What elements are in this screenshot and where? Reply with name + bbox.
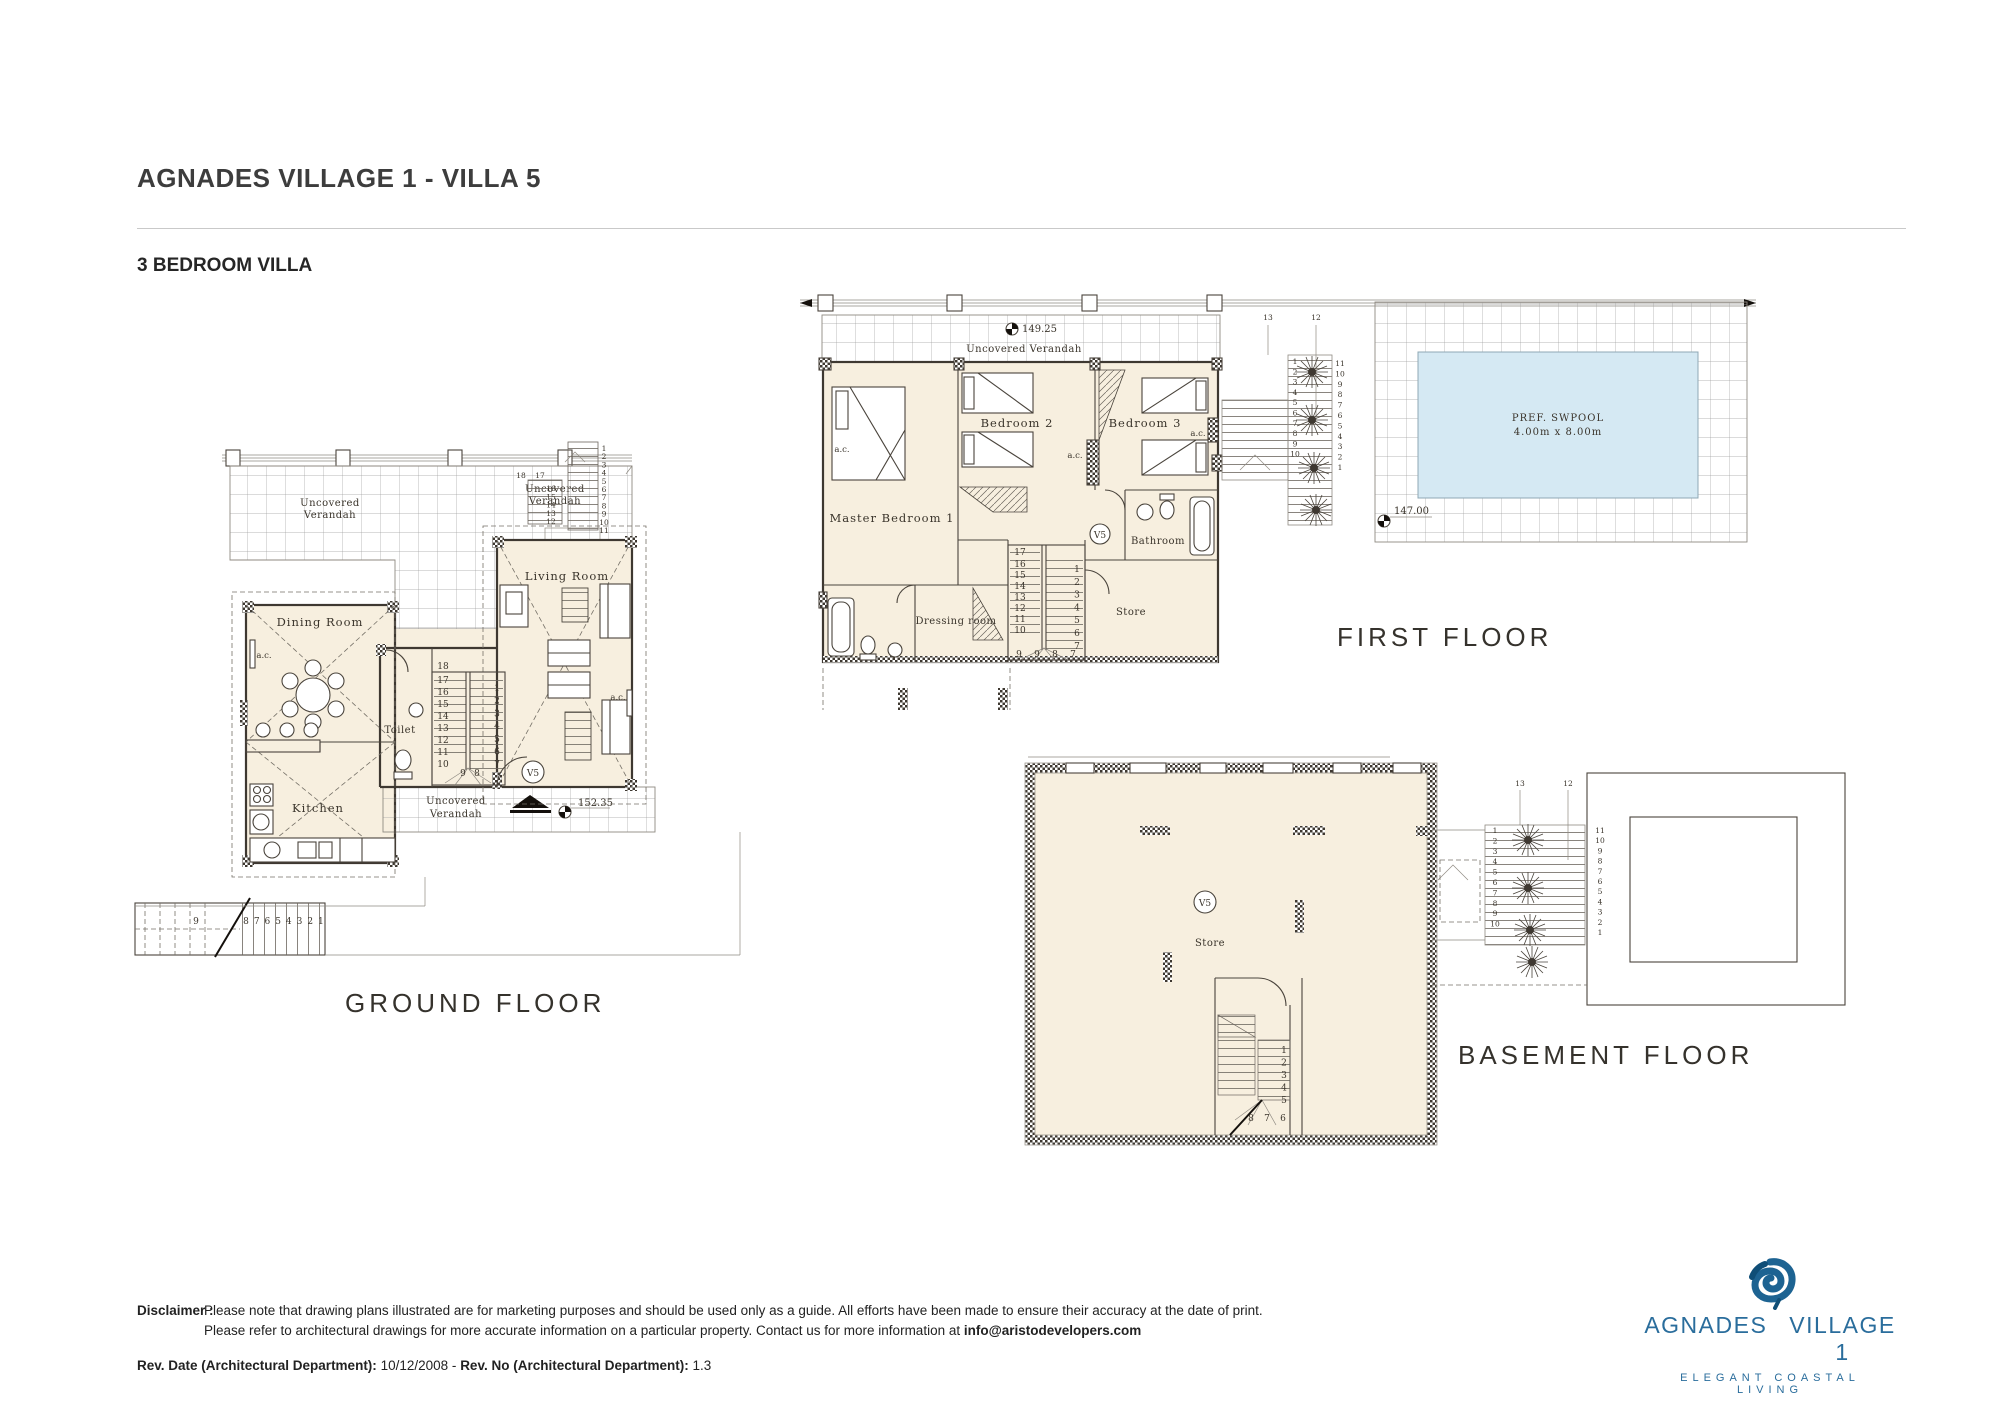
- stair-number: 15: [437, 700, 449, 710]
- stair-number: 13: [1014, 593, 1026, 603]
- stair-number: 5: [1281, 1096, 1287, 1106]
- stair-number: 6: [1293, 409, 1298, 418]
- stair-number: 6: [494, 748, 500, 758]
- stair-number: 1: [318, 917, 324, 927]
- header-divider: [137, 228, 1906, 229]
- floorplan-page: AGNADES VILLAGE 1 - VILLA 5 3 BEDROOM VI…: [0, 0, 2000, 1414]
- stair-numbers: 1234567: [1074, 565, 1080, 652]
- stair-number: 4: [1293, 388, 1298, 397]
- stair-number: 4: [1598, 897, 1603, 906]
- bedroom2-label: Bedroom 2: [981, 416, 1054, 430]
- stair-number: 3: [494, 709, 500, 719]
- lower-floor-outline: [823, 668, 1010, 710]
- svg-text:Verandah: Verandah: [303, 510, 356, 521]
- ac-label: a.c.: [256, 651, 271, 661]
- svg-text:V5: V5: [526, 769, 539, 779]
- stair-number: 11: [1595, 826, 1605, 835]
- verandah-bottom: [383, 787, 655, 832]
- first-floor-caption: FIRST FLOOR: [1337, 622, 1552, 653]
- disclaimer-label: Disclaimer :: [137, 1303, 214, 1318]
- ground-floor-caption: GROUND FLOOR: [345, 988, 605, 1019]
- stair-number: 9: [1016, 650, 1022, 660]
- stair-number: 7: [1070, 650, 1076, 660]
- stair-number: 2: [1074, 578, 1080, 588]
- pool-size-label: 4.00m x 8.00m: [1514, 427, 1603, 438]
- store-label: Store: [1116, 607, 1146, 618]
- stair-number: 2: [1338, 453, 1343, 462]
- stair-number: 18: [516, 471, 526, 480]
- exterior-stair: [1222, 325, 1332, 526]
- stair-number: 1: [1293, 357, 1298, 366]
- unit-badge: V5: [1090, 524, 1110, 544]
- stair-number: 5: [275, 917, 281, 927]
- stair-number: 9: [193, 917, 199, 927]
- stair-number: 12: [1563, 779, 1573, 788]
- ac-label: a.c.: [1067, 451, 1082, 461]
- unit-badge: V5: [1194, 891, 1216, 913]
- stair-number: 6: [1338, 411, 1343, 420]
- stair-number: 6: [1280, 1114, 1286, 1124]
- stair-number: 1: [1281, 1046, 1287, 1056]
- logo-name: AGNADES VILLAGE 1: [1650, 1312, 1890, 1366]
- stair-number: 17: [437, 676, 449, 686]
- stair-number: 2: [1598, 918, 1603, 927]
- stair-number: 4: [286, 917, 292, 927]
- stair-number: 3: [1338, 442, 1343, 451]
- stair-number: 16: [437, 688, 449, 698]
- svg-text:Verandah: Verandah: [429, 809, 482, 820]
- stair-number: 5: [1493, 868, 1498, 877]
- stair-number: 12: [1311, 313, 1321, 322]
- level-value: 152.35: [578, 798, 613, 809]
- pool-label: PREF. SWPOOL: [1512, 413, 1604, 424]
- disclaimer-line1: Please note that drawing plans illustrat…: [204, 1303, 1263, 1318]
- logo-tagline: ELEGANT COASTAL LIVING: [1650, 1372, 1890, 1396]
- stair-number: 1: [494, 684, 500, 694]
- rev-no-value: 1.3: [693, 1358, 712, 1373]
- stair-number: 12: [1014, 604, 1025, 614]
- stair-number: 3: [1293, 378, 1298, 387]
- bathroom-label: Bathroom: [1131, 536, 1185, 547]
- stair-number: 11: [437, 748, 448, 758]
- stair-number: 5: [1338, 421, 1343, 430]
- stair-number: 12: [437, 736, 448, 746]
- disclaimer-line2-text: Please refer to architectural drawings f…: [204, 1323, 964, 1338]
- stair-number: 7: [1338, 401, 1343, 410]
- stair-number: 12: [546, 517, 556, 526]
- stair-number: 5: [1293, 398, 1298, 407]
- stair-number: 5: [494, 735, 500, 745]
- stair-number: 8: [243, 917, 249, 927]
- stair-number: 10: [1014, 626, 1026, 636]
- svg-text:V5: V5: [1093, 531, 1106, 541]
- basement-floor-plan: V5 Store 12345 876 1312 12345678910: [1020, 755, 1850, 1175]
- level-value: 147.00: [1394, 506, 1429, 517]
- stair-number: 2: [1293, 367, 1298, 376]
- stair-number: 2: [1493, 836, 1498, 845]
- stair-numbers: 1234567: [494, 684, 500, 770]
- stair-numbers: 1312: [1263, 313, 1321, 322]
- stair-number: 9: [1493, 909, 1498, 918]
- stair-number: 11: [599, 526, 609, 535]
- verandah-top-left-label: Uncovered Verandah: [300, 498, 360, 521]
- unit-badge: V5: [522, 761, 544, 783]
- stair-numbers: 12345: [1281, 1046, 1287, 1106]
- stair-number: 3: [1493, 847, 1498, 856]
- stair-number: 4: [1074, 603, 1080, 613]
- ac-unit: [627, 690, 632, 716]
- disclaimer-email: info@aristodevelopers.com: [964, 1323, 1141, 1338]
- revision-line: Rev. Date (Architectural Department): 10…: [137, 1358, 711, 1373]
- level-value: 149.25: [1022, 324, 1057, 335]
- dining-room-label: Dining Room: [277, 615, 364, 629]
- stair-number: 10: [1290, 450, 1300, 459]
- svg-text:Uncovered: Uncovered: [300, 498, 360, 509]
- stair-number: 10: [1335, 369, 1345, 378]
- exterior-stair: [1432, 790, 1585, 978]
- stair-number: 1: [1338, 463, 1343, 472]
- logo-name-right: VILLAGE 1: [1789, 1312, 1895, 1366]
- kitchen-label: Kitchen: [292, 801, 344, 815]
- stair-number: 3: [1074, 591, 1080, 601]
- stair-numbers: 1615141312: [546, 484, 556, 526]
- stair-number: 14: [437, 712, 449, 722]
- level-marker-icon: [1006, 323, 1018, 335]
- stair-number: 9: [1598, 846, 1603, 855]
- stair-number: 7: [254, 917, 260, 927]
- stair-number: 10: [1595, 836, 1605, 845]
- bedroom2-beds: [960, 373, 1033, 512]
- stair-number: 10: [437, 760, 449, 770]
- stair-number: 3: [1598, 908, 1603, 917]
- stair-number: 5: [1074, 616, 1080, 626]
- stair-number: 9: [1338, 380, 1343, 389]
- master-bedroom-label: Master Bedroom 1: [830, 511, 955, 525]
- ac-label: a.c.: [1190, 429, 1205, 439]
- stair-number: 8: [1338, 390, 1343, 399]
- stair-number: 2: [307, 917, 313, 927]
- stair-numbers: 16151413121110: [1014, 560, 1026, 636]
- stair-number: 7: [1493, 888, 1498, 897]
- stair-number: 17: [535, 471, 545, 480]
- swimming-pool: [1418, 352, 1698, 498]
- page-subtitle: 3 BEDROOM VILLA: [137, 255, 312, 277]
- stair-number: 5: [1598, 887, 1603, 896]
- svg-text:V5: V5: [1198, 899, 1211, 909]
- stair-number: 16: [1014, 560, 1026, 570]
- stair-number: 9: [1293, 439, 1298, 448]
- stair-number: 7: [1264, 1114, 1270, 1124]
- brand-logo: AGNADES VILLAGE 1 ELEGANT COASTAL LIVING: [1650, 1256, 1890, 1396]
- verandah-label: Uncovered Verandah: [966, 344, 1082, 355]
- stair-numbers: 1312: [1515, 779, 1573, 788]
- stair-number: 9: [1034, 650, 1040, 660]
- stair-number: 4: [494, 722, 500, 732]
- store-label: Store: [1195, 938, 1225, 949]
- stair-numbers: 876: [1248, 1114, 1286, 1124]
- stair-number: 3: [1281, 1071, 1287, 1081]
- ac-label: a.c.: [610, 693, 625, 703]
- basement-floor-caption: BASEMENT FLOOR: [1458, 1040, 1753, 1071]
- stair-number: 8: [1052, 650, 1058, 660]
- stair-number: 1: [1074, 565, 1080, 575]
- stair-number: 6: [1074, 629, 1080, 639]
- stair-number: 7: [1293, 419, 1298, 428]
- stair-number: 8: [1293, 429, 1298, 438]
- stair-number: 13: [437, 724, 449, 734]
- stair-number: 2: [494, 697, 500, 707]
- stair-number: 8: [1493, 899, 1498, 908]
- logo-name-left: AGNADES: [1644, 1312, 1767, 1366]
- stair-number: 4: [1281, 1084, 1287, 1094]
- toilet-label: Toilet: [384, 725, 415, 736]
- stair-number: 15: [1014, 571, 1026, 581]
- stair-numbers: 1110987654321: [1595, 826, 1605, 937]
- rev-date-value: 10/12/2008: [381, 1358, 449, 1373]
- first-floor-plan: 149.25 Uncovered Verandah Master Bedroom…: [790, 290, 1800, 710]
- ground-floor-plan: Uncovered Verandah Uncovered Verandah 18…: [120, 330, 800, 1030]
- rev-no-label: Rev. No (Architectural Department):: [460, 1358, 689, 1373]
- stair-number: 7: [1598, 867, 1603, 876]
- stair-number: 6: [265, 917, 271, 927]
- stair-number: 1: [1598, 928, 1603, 937]
- page-title: AGNADES VILLAGE 1 - VILLA 5: [137, 163, 541, 194]
- exterior-stair-lower: 9: [135, 832, 740, 957]
- stair-number: 7: [494, 760, 500, 770]
- stair-number: 6: [1493, 878, 1498, 887]
- stair-number: 4: [1338, 432, 1343, 441]
- disclaimer-line2: Please refer to architectural drawings f…: [204, 1323, 1141, 1338]
- ac-unit: [250, 640, 255, 668]
- rev-date-label: Rev. Date (Architectural Department):: [137, 1358, 377, 1373]
- bedroom3-label: Bedroom 3: [1109, 416, 1182, 430]
- stair-number: 8: [1598, 857, 1603, 866]
- stair-number: 14: [1014, 582, 1026, 592]
- master-bed: [832, 387, 905, 480]
- rev-separator: -: [452, 1358, 457, 1373]
- stair-number: 8: [1248, 1114, 1254, 1124]
- ac-label: a.c.: [834, 445, 849, 455]
- stair-numbers: 1110987654321: [1335, 359, 1345, 472]
- stair-number: 13: [1515, 779, 1525, 788]
- stair-number: 3: [297, 917, 303, 927]
- stair-number: 8: [474, 769, 480, 779]
- stair-number: 13: [1263, 313, 1273, 322]
- stair-number: 10: [1490, 920, 1500, 929]
- stair-number: 18: [437, 662, 449, 672]
- stair-number: 1: [1493, 826, 1498, 835]
- stair-number: 9: [460, 769, 466, 779]
- stair-number: 11: [1335, 359, 1345, 368]
- stair-number: 6: [1598, 877, 1603, 886]
- svg-text:Uncovered: Uncovered: [426, 796, 486, 807]
- stair-number: 17: [1014, 548, 1026, 558]
- stair-number: 11: [1014, 615, 1025, 625]
- living-room-label: Living Room: [525, 569, 609, 583]
- stair-number: 4: [1493, 857, 1498, 866]
- stair-number: 2: [1281, 1059, 1287, 1069]
- shell-icon: [1735, 1256, 1805, 1310]
